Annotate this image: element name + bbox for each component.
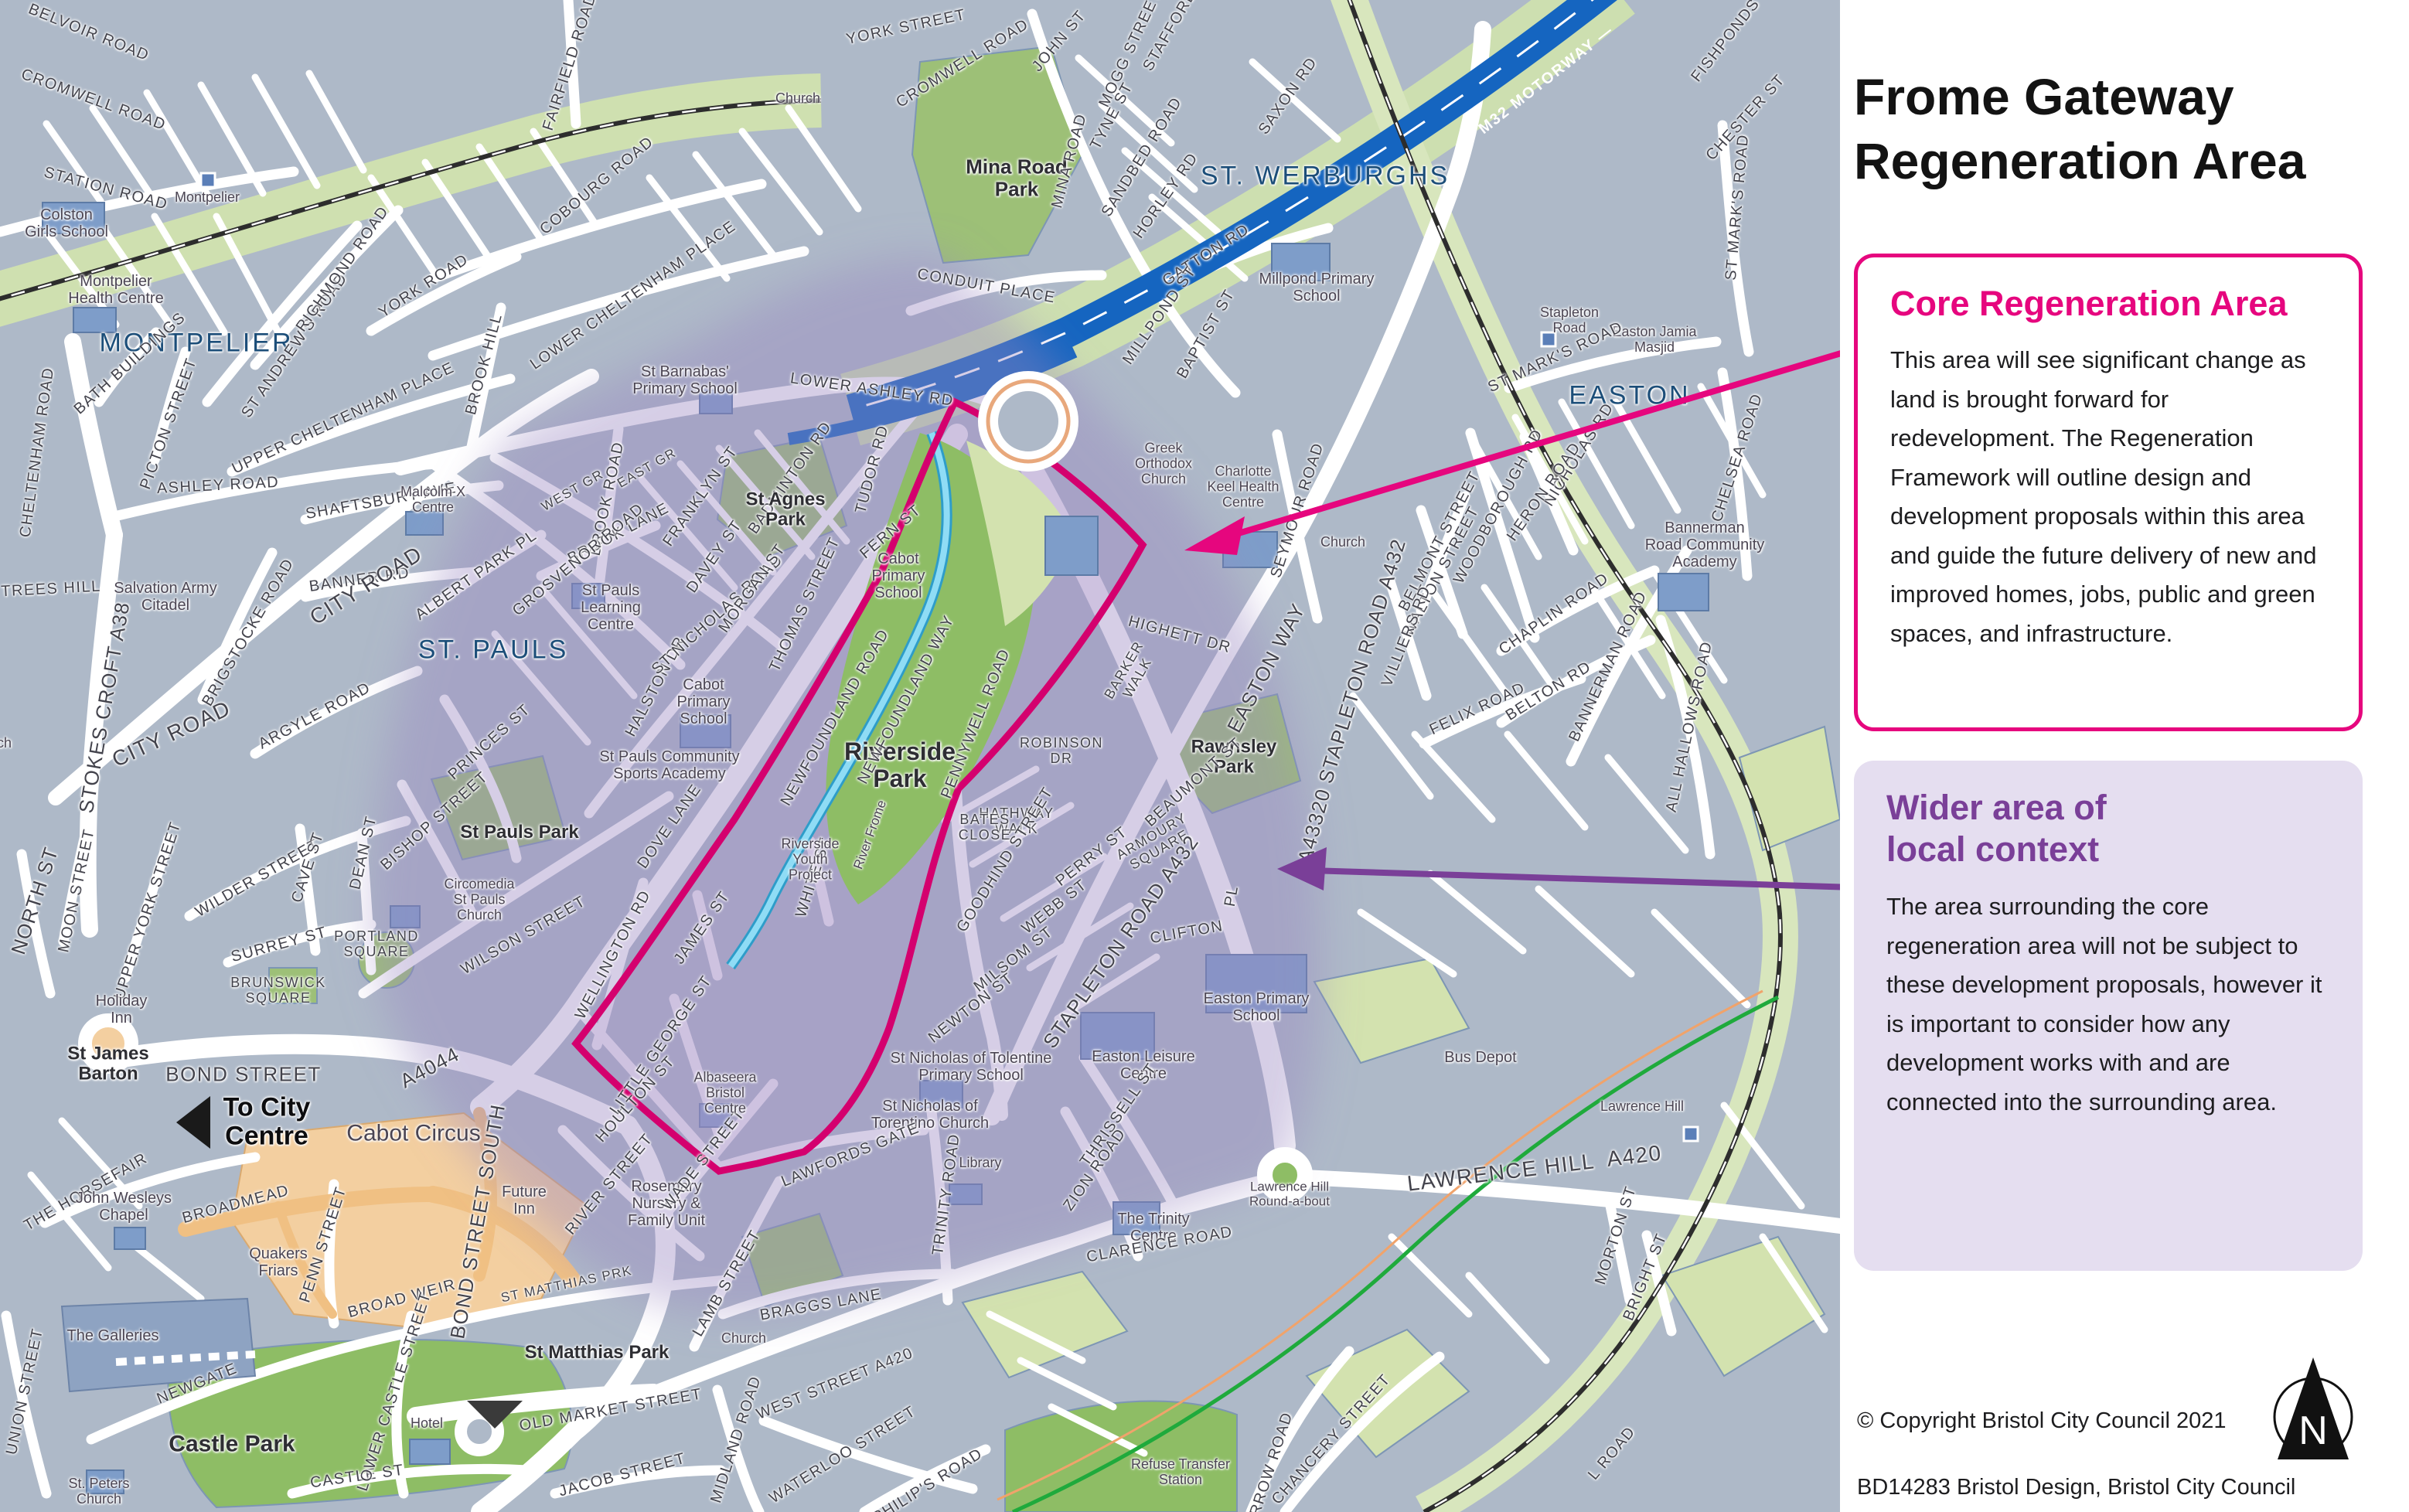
map-label-trinity-road: TRINITY ROAD (929, 1132, 963, 1256)
map-label-gatton-rd: GATTON RD (1160, 221, 1253, 290)
map-label-little-george-st: LITTLE GEORGE ST (607, 972, 716, 1118)
map-label-st-nicholas-road: ST NICHOLAS ROAD (649, 551, 786, 678)
map-label-argyle-road: ARGYLE ROAD (256, 679, 373, 752)
map-label-badminton-rd: BADMINTON RD (745, 418, 836, 537)
map-label-easton-jamia-masjid: Easton Jamia Masjid (1612, 325, 1696, 356)
map-label-lawrence-hill-round-a-bout: Lawrence Hill Round-a-bout (1249, 1180, 1330, 1208)
map-label-john-wesleys-chapel: John Wesleys Chapel (76, 1190, 172, 1224)
map-label-horley-rd: HORLEY RD (1130, 150, 1201, 242)
map-label-millpond-st: MILLPOND ST (1119, 263, 1200, 367)
map-label-chancery-street: CHANCERY STREET (1269, 1371, 1395, 1507)
map-label-banner-rd: BANNER RD (308, 564, 411, 595)
map-label-wade-street: WADE STREET (659, 1105, 748, 1214)
map-label-dean-st: DEAN ST (346, 814, 380, 891)
map-label-broadmead: BROADMEAD (180, 1182, 291, 1227)
map-label-surrey-st: SURREY ST (230, 924, 329, 965)
map-label-st-matthias-park: St Matthias Park (525, 1343, 670, 1363)
map-label-wellington-rd: WELLINGTON RD (572, 887, 655, 1022)
map-label-circomedia-st-pauls-church: Circomedia St Pauls Church (444, 877, 514, 922)
map-label-davey-st: DAVEY ST (683, 517, 746, 596)
map-label-st-nicholas-of-torentino-church: St Nicholas of Torentino Church (871, 1098, 989, 1132)
map-label-montpelier: Montpelier (175, 190, 240, 206)
map-label-baptist-st: BAPTIST ST (1174, 287, 1239, 382)
map-label-grosvenor-road: GROSVENOR ROAD (509, 500, 647, 620)
map-label-chester-st: CHESTER ST (1702, 71, 1788, 164)
map-label-lamb-street: LAMB STREET (690, 1227, 765, 1340)
map-label-lawfords-gate: LAWFORDS GATE (779, 1119, 922, 1190)
map-label-halston-dr: HALSTON DR (622, 633, 690, 739)
map-label-refuse-transfer-station: Refuse Transfer Station (1131, 1457, 1230, 1488)
map-label-hathway-walk: HATHWAY WALK (979, 806, 1054, 837)
map-label-cabot-primary-school: Cabot Primary School (677, 676, 731, 727)
map-label-moon-street: MOON STREET (55, 827, 97, 954)
map-label-brigstocke-road: BRIGSTOCKE ROAD (199, 556, 297, 710)
map-label-west-street-a420: WEST STREET A420 (754, 1344, 915, 1423)
map-label-church: Church (721, 1331, 766, 1347)
map-label-brook-road: BROOK ROAD (587, 440, 628, 557)
map-label-easton: EASTON (1569, 381, 1690, 410)
map-label-woodborough-rd: WOODBOROUGH RD (1450, 426, 1546, 586)
map-label-m32-motorway: M32 MOTORWAY — (1475, 22, 1617, 138)
map-label-fern-st: FERN ST (857, 502, 925, 563)
map-label-bond-street: BOND STREET (165, 1064, 321, 1086)
map-label-wilson-street: WILSON STREET (458, 893, 588, 978)
map-label-shaftsbury-ave: SHAFTSBURY AVE (305, 479, 458, 523)
map-label-st-mark-s-road: ST MARK'S ROAD (1485, 318, 1626, 396)
map-label-newfoundland-road: NEWFOUNDLAND ROAD (777, 626, 892, 809)
map-label-broad-weir: BROAD WEIR (346, 1276, 458, 1321)
map-label-pl: PL (1222, 884, 1242, 908)
map-label-bright-st: BRIGHT ST (1620, 1231, 1670, 1323)
map-label-jacob-street: JACOB STREET (557, 1449, 687, 1500)
map-label-brook-hill: BROOK HILL (462, 312, 506, 417)
map-label-sandbed-road: SANDBED ROAD (1099, 94, 1186, 220)
map-label-mina-road: MINA ROAD (1048, 111, 1090, 209)
map-label-city-road: CITY ROAD (306, 542, 428, 630)
map-label-cabot-primary-school: Cabot Primary School (872, 550, 925, 601)
map-label-union-street: UNION STREET (3, 1326, 46, 1456)
map-label-church: Church (0, 736, 12, 751)
map-label-easton-leisure-centre: Easton Leisure Centre (1092, 1048, 1194, 1082)
map-label-james-st: JAMES ST (671, 888, 734, 968)
map-label-st-pauls-park: St Pauls Park (460, 822, 578, 843)
map-label-a4044: A4044 (397, 1043, 463, 1092)
map-label-rawnsley-park: Rawnsley Park (1191, 737, 1277, 778)
map-label-east-gr: EAST GR (615, 446, 680, 492)
map-label-tyne-st: TYNE ST (1087, 80, 1136, 152)
map-label-st-nicholas-of-tolentine-primary-school: St Nicholas of Tolentine Primary School (891, 1050, 1052, 1084)
map-label-cave-st: CAVE ST (288, 830, 327, 905)
map-label-the-trinity-centre: The Trinity Centre (1117, 1211, 1189, 1245)
map-label-upper-cheltenham-place: UPPER CHELTENHAM PLACE (230, 359, 458, 477)
map-label-stokes-croft-a38: STOKES CROFT A38 (75, 600, 134, 815)
map-label-lower-ashley-rd: LOWER ASHLEY RD (789, 369, 955, 409)
map-label-morgan-st: MORGAN ST (715, 541, 789, 636)
map-label-clifton: CLIFTON (1149, 918, 1225, 947)
design-credit-text: BD14283 Bristol Design, Bristol City Cou… (1857, 1475, 2295, 1500)
map-label-ashley-road: ASHLEY ROAD (156, 474, 279, 497)
map-label-bishop-street: BISHOP STREET (377, 768, 492, 873)
map-label-philip-s-road: PHILIP'S ROAD (870, 1445, 986, 1512)
map-label-north-st: NORTH ST (7, 844, 63, 957)
map-label-malcolm-x-centre: Malcolm X Centre (400, 485, 465, 516)
map-label-st-pauls: ST. PAULS (418, 635, 569, 664)
map-label-seymour-road: SEYMOUR ROAD (1267, 441, 1327, 580)
map-label-felix-road: FELIX ROAD (1427, 679, 1528, 739)
map-label-clarence-road: CLARENCE ROAD (1085, 1224, 1235, 1266)
map-label-princes-st: PRINCES ST (445, 701, 533, 784)
map-label-quakers-friars: Quakers Friars (249, 1245, 308, 1279)
map-label-mogg-street: MOGG STREET (1095, 0, 1164, 110)
map-label-walton-street: WALTON STREET (1399, 503, 1482, 639)
wider-callout-body: The area surrounding the core regenerati… (1886, 887, 2330, 1122)
map-label-goodhind-street: GOODHIND STREET (953, 784, 1057, 935)
map-label-webb-st: WEBB ST (1019, 876, 1091, 937)
map-label-old-market-street: OLD MARKET STREET (518, 1385, 704, 1434)
map-label-milsom-st: MILSOM ST (971, 923, 1057, 995)
map-label-stapleton-road: Stapleton Road (1540, 305, 1599, 336)
map-label-wilder-street: WILDER STREET (193, 836, 322, 921)
map-label-city-road: CITY ROAD (109, 696, 235, 772)
map-label-st-pauls-community-sports-academy: St Pauls Community Sports Academy (599, 748, 739, 782)
map-label-barrow-road: BARROW ROAD (1239, 1410, 1296, 1512)
map-label-armoury-square: ARMOURY SQUARE (1114, 810, 1198, 876)
map-label-stapleton-road-a432: STAPLETON ROAD A432 (1314, 536, 1410, 786)
map-label-riverside-youth-project: Riverside Youth Project (781, 836, 839, 882)
map-label-library: Library (959, 1156, 1001, 1171)
map-label-riverside-park: Riverside Park (844, 738, 956, 792)
map-label-morton-st: MORTON ST (1592, 1183, 1640, 1286)
map-label-all-hallows-road: ALL HALLOWS ROAD (1663, 639, 1716, 813)
map-label-tudor-rd: TUDOR RD (852, 423, 892, 515)
map-label-white-st: WHITE ST (792, 835, 834, 919)
map-label-newgate: NEWGATE (155, 1360, 240, 1408)
map-label-picton-street: PICTON STREET (137, 356, 200, 492)
map-label-st-pauls-learning-centre: St Pauls Learning Centre (581, 582, 641, 633)
map-label-newton-st: NEWTON ST (925, 969, 1017, 1046)
map-label-brook-lane: BROOK LANE (565, 499, 672, 567)
map-label-to-city-centre: To City Centre (223, 1094, 311, 1152)
map-label-saxon-rd: SAXON RD (1256, 54, 1321, 138)
map-label-the-galleries: The Galleries (67, 1327, 159, 1344)
map-label-colston-girls-school: Colston Girls School (25, 206, 108, 240)
map-label-york-street: YORK STREET (845, 6, 968, 48)
map-label-st-james-barton: St James Barton (67, 1044, 148, 1085)
map-label-belton-rd: BELTON RD (1503, 658, 1595, 724)
map-label-bannerman-road-community-academy: Bannerman Road Community Academy (1645, 519, 1765, 570)
map-label-richmond-road: RICHMOND ROAD (293, 203, 393, 335)
map-label-franklyn-st: FRANKLYN ST (659, 443, 741, 550)
map[interactable]: BELVOIR ROADCROMWELL ROADCROMWELL ROADFA… (0, 0, 1840, 1512)
map-label-albaseera-bristol-centre: Albaseera Bristol Centre (693, 1070, 756, 1115)
map-label-st-matthias-prk: ST MATTHIAS PRK (499, 1264, 633, 1306)
map-label-penn-street: PENN STREET (296, 1184, 349, 1305)
map-label-castle-park: Castle Park (169, 1432, 295, 1457)
map-label-l-road: L ROAD (1585, 1423, 1639, 1483)
map-label-lower-cheltenham-place: LOWER CHELTENHAM PLACE (527, 217, 739, 373)
map-label-st-andrew-s-road: ST ANDREW'S ROAD (238, 270, 351, 421)
map-label-highett-dr: HIGHETT DR (1126, 613, 1233, 657)
core-callout-body: This area will see significant change as… (1890, 341, 2326, 653)
map-label-bath-buildings: BATH BUILDINGS (70, 309, 189, 418)
map-label-station-road: STATION ROAD (42, 164, 169, 213)
map-label-the-horsefair: THE HORSEFAIR (21, 1149, 150, 1234)
map-label-west-gr: WEST GR (540, 468, 607, 515)
map-label-lawrence-hill-a420: LAWRENCE HILL A420 (1406, 1142, 1664, 1197)
map-label-charlotte-keel-health-centre: Charlotte Keel Health Centre (1207, 464, 1279, 509)
map-label-robinson-dr: ROBINSON DR (1020, 736, 1103, 767)
map-label-brunswick-square: BRUNSWICK SQUARE (230, 976, 326, 1006)
map-label-belvoir-road: BELVOIR ROAD (26, 1, 152, 65)
map-label-chaplin-road: CHAPLIN ROAD (1496, 570, 1612, 658)
map-label-newfoundland-way: NEWFOUNDLAND WAY (854, 612, 958, 787)
map-label-salvation-army-citadel: Salvation Army Citadel (114, 580, 216, 614)
page-title: Frome Gateway Regeneration Area (1854, 65, 2387, 192)
map-label-rosemary-nursery-family-unit: Rosemary Nursery & Family Unit (628, 1178, 705, 1229)
map-label-thomas-street: THOMAS STREET (766, 534, 843, 674)
map-label-st-mark-s-road: ST MARK'S ROAD (1722, 133, 1752, 281)
map-label-future-inn: Future Inn (502, 1183, 547, 1217)
map-label-cheltenham-road: CHELTENHAM ROAD (17, 366, 58, 538)
map-label-lawrence-hill: Lawrence Hill (1600, 1099, 1684, 1115)
map-label-belmont-street: BELMONT STREET (1395, 468, 1484, 614)
map-label-mina-road-park: Mina Road Park (966, 155, 1067, 199)
map-label-waterloo-street: WATERLOO STREET (766, 1403, 919, 1507)
map-label-montpelier-health-centre: Montpelier Health Centre (68, 273, 163, 307)
map-label-river-street: RIVER STREET (562, 1130, 656, 1238)
core-regeneration-callout: Core Regeneration Area This area will se… (1854, 254, 2363, 731)
map-label-albert-park-pl: ALBERT PARK PL (412, 526, 540, 623)
map-label-beaumont-st: BEAUMONT ST (1142, 734, 1245, 830)
map-label-millpond-primary-school: Millpond Primary School (1259, 271, 1375, 305)
map-label-fishponds: FISHPONDS (1688, 0, 1763, 85)
map-label-trees-hill: TREES HILL (1, 578, 101, 601)
map-label-cobourg-road: COBOURG ROAD (537, 133, 657, 238)
map-label-lower-castle-street: LOWER CASTLE STREET (354, 1289, 434, 1493)
map-label-stapleton-road-a432: STAPLETON ROAD A432 (1039, 831, 1203, 1052)
page: BELVOIR ROADCROMWELL ROADCROMWELL ROADFA… (0, 0, 2409, 1512)
map-label-pennywell-road: PENNYWELL ROAD (938, 646, 1014, 801)
map-label-bond-street-south: BOND STREET SOUTH (446, 1102, 509, 1340)
map-label-st-barnabas-primary-school: St Barnabas' Primary School (632, 363, 738, 397)
map-label-st-werburghs: ST. WERBURGHS (1201, 162, 1450, 190)
map-label-cabot-circus: Cabot Circus (346, 1121, 480, 1146)
map-label-conduit-place: CONDUIT PLACE (916, 265, 1057, 306)
map-label-hotel: Hotel (411, 1416, 443, 1432)
map-label-easton-primary-school: Easton Primary School (1204, 990, 1310, 1024)
map-labels: BELVOIR ROADCROMWELL ROADCROMWELL ROADFA… (0, 0, 1840, 1512)
wider-area-callout: Wider area of local context The area sur… (1854, 761, 2363, 1271)
map-label-houlton-st: HOULTON ST (592, 1053, 678, 1146)
map-label-heron-road: HERON ROAD (1504, 439, 1584, 544)
north-compass-icon: N (2267, 1351, 2360, 1475)
map-label-dove-lane: DOVE LANE (634, 781, 704, 871)
map-label-york-road: YORK ROAD (376, 250, 472, 321)
map-label-upper-york-street: UPPER YORK STREET (111, 819, 184, 1002)
map-label-portland-square: PORTLAND SQUARE (334, 929, 419, 960)
map-label-villiers-rd: VILLIERS RD (1378, 584, 1434, 690)
sidebar: Frome Gateway Regeneration Area Core Reg… (1840, 0, 2409, 1512)
map-label-fairfield-road: FAIRFIELD ROAD (540, 0, 600, 133)
map-label-john-st: JOHN ST (1029, 7, 1090, 75)
map-label-stafford-rd: STAFFORD RD (1140, 0, 1215, 74)
map-label-cromwell-road: CROMWELL ROAD (893, 15, 1031, 111)
map-label-chelsea-road: CHELSEA ROAD (1709, 391, 1767, 524)
map-label-easton-way: EASTON WAY (1223, 600, 1310, 737)
copyright-text: © Copyright Bristol City Council 2021 (1857, 1408, 2227, 1434)
map-label-midland-road: MIDLAND ROAD (707, 1374, 765, 1505)
map-label-st-agnes-park: St Agnes Park (745, 490, 825, 531)
map-label-perry-st: PERRY ST (1052, 823, 1130, 890)
map-label-zion-road: ZION ROAD (1060, 1125, 1130, 1214)
map-label-river-frome: River Frome (851, 799, 890, 871)
map-label-bus-depot: Bus Depot (1444, 1049, 1516, 1066)
map-label-cromwell-road: CROMWELL ROAD (19, 66, 168, 134)
map-label-bates-close: BATES CLOSE (959, 812, 1012, 843)
map-label-greek-orthodox-church: Greek Orthodox Church (1135, 441, 1192, 486)
core-callout-heading: Core Regeneration Area (1890, 284, 2326, 324)
map-label-bannerman-road: BANNERMAN ROAD (1566, 588, 1651, 744)
map-label-church: Church (775, 91, 820, 107)
map-label-castle-st: CASTLE ST (309, 1462, 405, 1492)
map-label-montpelier: MONTPELIER (99, 329, 293, 357)
map-label-barker-walk: BARKER WALK (1102, 639, 1160, 710)
wider-callout-heading: Wider area of local context (1886, 787, 2330, 870)
map-label-nicholas-rd: NICHOLAS RD (1540, 400, 1617, 509)
map-label-holiday-inn: Holiday Inn (96, 993, 148, 1027)
compass-letter: N (2298, 1408, 2328, 1453)
map-label-braggs-lane: BRAGGS LANE (758, 1286, 883, 1323)
map-label-a43320: A43320 (1293, 786, 1334, 866)
map-label-thrissell-st: THRISSELL ST (1077, 1060, 1160, 1169)
map-label-church: Church (1320, 535, 1365, 550)
map-label-st-peters-church: St. Peters Church (68, 1476, 129, 1507)
